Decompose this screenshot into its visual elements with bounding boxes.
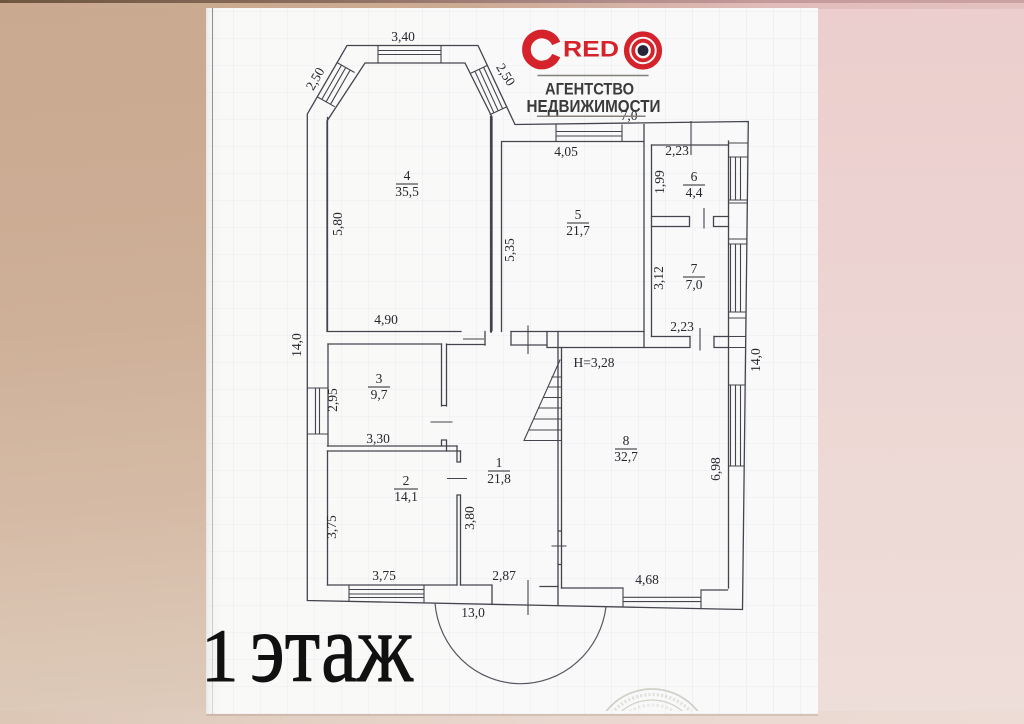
svg-text:2,23: 2,23 <box>670 319 694 334</box>
svg-text:3,80: 3,80 <box>462 506 477 530</box>
svg-text:21,8: 21,8 <box>487 471 511 486</box>
svg-text:35,5: 35,5 <box>395 184 419 199</box>
svg-text:3,75: 3,75 <box>324 515 339 539</box>
svg-text:НЕДВИЖИМОСТИ: НЕДВИЖИМОСТИ <box>527 96 661 116</box>
svg-text:RED: RED <box>563 37 619 62</box>
svg-text:1,99: 1,99 <box>652 170 667 194</box>
svg-text:14,0: 14,0 <box>748 348 763 372</box>
svg-text:4,68: 4,68 <box>635 572 659 587</box>
svg-text:7,0: 7,0 <box>686 277 703 292</box>
svg-text:5,80: 5,80 <box>330 212 345 236</box>
svg-text:2,50: 2,50 <box>303 65 328 93</box>
svg-text:4,4: 4,4 <box>686 185 703 200</box>
svg-text:8: 8 <box>623 433 630 448</box>
svg-text:21,7: 21,7 <box>566 223 590 238</box>
svg-text:3,40: 3,40 <box>391 29 415 44</box>
svg-text:2: 2 <box>403 473 410 488</box>
svg-text:14,1: 14,1 <box>394 489 418 504</box>
svg-text:1: 1 <box>201 615 239 698</box>
svg-text:этаж: этаж <box>250 594 413 703</box>
svg-text:13,0: 13,0 <box>461 605 485 620</box>
svg-text:1: 1 <box>496 455 503 470</box>
svg-text:9,7: 9,7 <box>371 387 388 402</box>
svg-text:2,87: 2,87 <box>492 568 516 583</box>
svg-text:3,75: 3,75 <box>372 568 396 583</box>
svg-text:14,0: 14,0 <box>289 333 304 357</box>
svg-text:4,90: 4,90 <box>374 312 398 327</box>
svg-text:3,30: 3,30 <box>366 431 390 446</box>
svg-text:3: 3 <box>376 371 383 386</box>
svg-text:5: 5 <box>575 207 582 222</box>
svg-text:32,7: 32,7 <box>614 449 638 464</box>
svg-text:3,12: 3,12 <box>651 266 666 290</box>
svg-text:5,35: 5,35 <box>502 238 517 262</box>
svg-text:4: 4 <box>404 168 411 183</box>
svg-text:6,98: 6,98 <box>708 457 723 481</box>
svg-text:4,05: 4,05 <box>554 144 578 159</box>
svg-text:H=3,28: H=3,28 <box>574 355 615 370</box>
svg-text:6: 6 <box>691 169 698 184</box>
svg-text:2,95: 2,95 <box>325 388 340 412</box>
svg-text:7: 7 <box>691 261 698 276</box>
svg-text:2,23: 2,23 <box>665 143 689 158</box>
